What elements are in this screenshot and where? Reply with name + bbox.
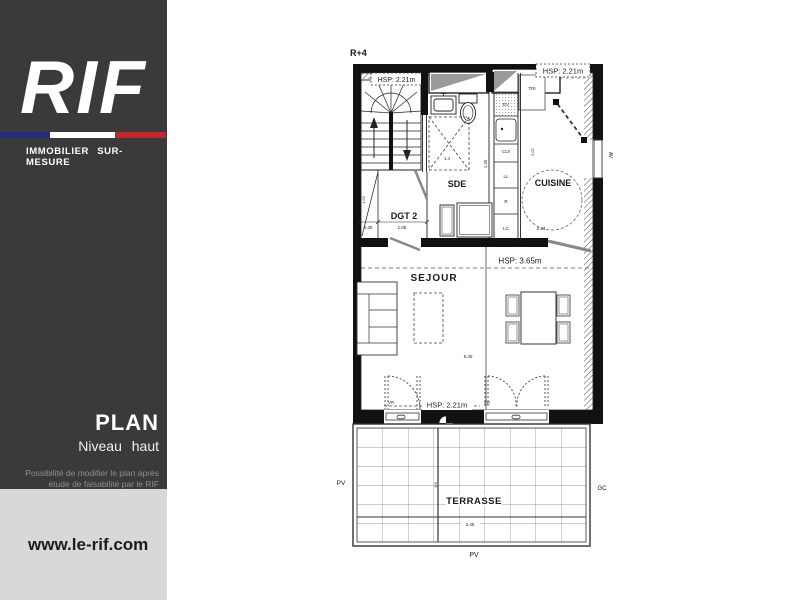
av-label: AV — [607, 152, 613, 159]
vr-left-label: VR — [388, 400, 395, 405]
tri-shaft: TRI — [519, 75, 545, 110]
door-dgt-sde — [415, 170, 427, 199]
cui-label: CUI — [502, 149, 510, 154]
lc-label: LC — [503, 226, 510, 231]
dining-set-icon — [506, 292, 570, 344]
dim-dgt-width: 1.05 — [398, 225, 407, 230]
staircase — [361, 80, 421, 170]
velux-left — [429, 72, 488, 93]
tri-label: TRI — [528, 86, 535, 91]
dim-sejour-width: 5.40 — [464, 354, 473, 359]
dim-closet-height: 1.52 — [361, 195, 366, 204]
sofa-icon — [357, 282, 397, 355]
shower-icon — [429, 117, 469, 170]
hsp-sejour-label: HSP: 3.65m — [498, 257, 541, 266]
ll-label: LL — [503, 174, 509, 179]
level-label: R+4 — [350, 48, 367, 58]
dim-sde-width: 1.35 — [483, 159, 488, 168]
sde-cabinets — [440, 203, 492, 237]
room-sde-label: SDE — [448, 179, 467, 189]
gc-label: GC — [598, 486, 608, 492]
ev-label: EV — [503, 102, 509, 107]
cuisine-window-shutter — [553, 99, 587, 143]
hsp-bay-label: HSP: 2.21m — [427, 401, 467, 410]
room-dgt-label: DGT 2 — [391, 211, 418, 221]
room-terrasse-label: TERRASSE — [446, 496, 502, 507]
dim-kitchen-width: 2.24 — [537, 226, 546, 231]
pv-left-label: PV — [337, 480, 346, 487]
dim-terrace-depth: 3.6 — [433, 481, 438, 487]
kitchen-column — [494, 73, 521, 241]
hsp-kitchen-label: HSP: 2.21m — [543, 67, 583, 76]
dim-shower: 1.4 — [444, 156, 450, 161]
floor-plan: R+4 AV — [0, 0, 800, 600]
toilet-icon — [459, 94, 477, 124]
page: RIF IMMOBILIER SUR-MESURE PLAN Niveau ha… — [0, 0, 800, 600]
mid-wall — [353, 238, 591, 251]
room-cuisine-label: CUISINE — [535, 178, 572, 188]
dim-terrace-width: 3.45 — [466, 522, 475, 527]
hsp-stairs-label: HSP: 2.21m — [378, 77, 416, 84]
room-sejour-label: SEJOUR — [410, 273, 457, 284]
dim-kitchen-depth: 2.07 — [530, 147, 535, 156]
hsp-stairs-tag: HSP: 2.21m — [371, 73, 422, 85]
vr-right-label: VR — [484, 401, 491, 406]
window-av — [593, 140, 603, 178]
dim-closet-width: 0.40 — [364, 225, 373, 230]
r-label: R — [504, 199, 508, 204]
sink-icon — [431, 93, 456, 115]
door-dgt-sejour — [390, 238, 420, 250]
pv-bottom-label: PV — [469, 552, 479, 559]
coffee-table-icon — [414, 293, 443, 343]
hsp-kitchen-tag: HSP: 2.21m — [536, 64, 590, 77]
terrace — [353, 424, 590, 546]
